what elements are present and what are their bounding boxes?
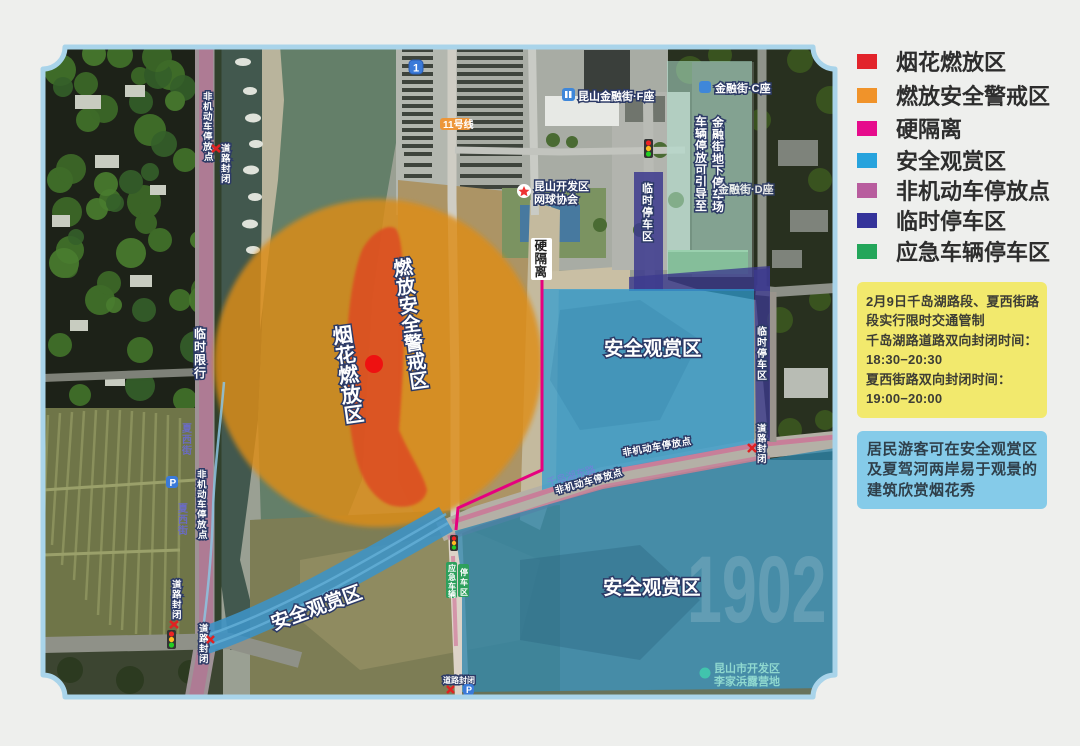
svg-text:临: 临 <box>194 326 206 341</box>
svg-text:车: 车 <box>642 217 653 231</box>
svg-text:金融街·D座: 金融街·D座 <box>717 182 774 196</box>
svg-text:街: 街 <box>177 524 188 537</box>
svg-text:1: 1 <box>413 63 419 75</box>
svg-text:区: 区 <box>642 230 653 243</box>
svg-text:西: 西 <box>178 514 188 526</box>
svg-text:车: 车 <box>460 577 468 587</box>
svg-text:安全观赏区: 安全观赏区 <box>603 576 701 599</box>
svg-text:停: 停 <box>460 567 468 577</box>
svg-text:离: 离 <box>535 264 548 279</box>
svg-text:点: 点 <box>204 151 214 163</box>
svg-text:昆山市开发区: 昆山市开发区 <box>714 661 780 675</box>
svg-text:行: 行 <box>193 365 206 380</box>
svg-text:1902: 1902 <box>687 537 826 643</box>
svg-text:时: 时 <box>642 193 653 207</box>
svg-text:街: 街 <box>181 444 192 457</box>
svg-text:夏: 夏 <box>181 423 193 435</box>
svg-text:西: 西 <box>182 434 192 446</box>
svg-text:闭: 闭 <box>172 609 182 621</box>
svg-text:网球协会: 网球协会 <box>534 192 579 206</box>
svg-text:昆山金融街·F座: 昆山金融街·F座 <box>578 89 654 103</box>
svg-text:临: 临 <box>642 181 653 195</box>
svg-text:硬: 硬 <box>535 239 548 253</box>
svg-text:11号线: 11号线 <box>443 118 474 131</box>
svg-text:区: 区 <box>757 370 767 382</box>
svg-text:李家浜露营地: 李家浜露营地 <box>713 674 780 688</box>
svg-text:时: 时 <box>757 336 767 349</box>
svg-text:金融街·C座: 金融街·C座 <box>714 81 771 95</box>
svg-text:停: 停 <box>642 205 653 219</box>
svg-text:区: 区 <box>460 588 468 597</box>
svg-text:P: P <box>170 478 177 489</box>
svg-text:安全观赏区: 安全观赏区 <box>604 337 702 360</box>
svg-text:时: 时 <box>194 339 206 354</box>
svg-text:场: 场 <box>712 200 724 214</box>
svg-text:急: 急 <box>448 572 456 582</box>
svg-text:区: 区 <box>343 403 366 428</box>
svg-text:临: 临 <box>757 325 767 338</box>
svg-text:辆: 辆 <box>448 589 456 599</box>
svg-text:昆山开发区: 昆山开发区 <box>534 179 589 193</box>
svg-text:隔: 隔 <box>535 251 548 266</box>
svg-text:道路封闭: 道路封闭 <box>443 675 475 685</box>
svg-text:限: 限 <box>194 352 206 367</box>
svg-text:夏: 夏 <box>177 503 189 515</box>
svg-text:点: 点 <box>198 529 208 541</box>
svg-text:闭: 闭 <box>199 653 209 665</box>
svg-text:P: P <box>466 685 472 695</box>
svg-text:应: 应 <box>448 563 456 573</box>
svg-text:停: 停 <box>757 347 767 360</box>
svg-text:车: 车 <box>757 358 767 371</box>
svg-text:至: 至 <box>695 199 707 213</box>
svg-text:区: 区 <box>408 370 430 393</box>
svg-text:闭: 闭 <box>757 453 767 465</box>
svg-text:闭: 闭 <box>221 173 231 185</box>
